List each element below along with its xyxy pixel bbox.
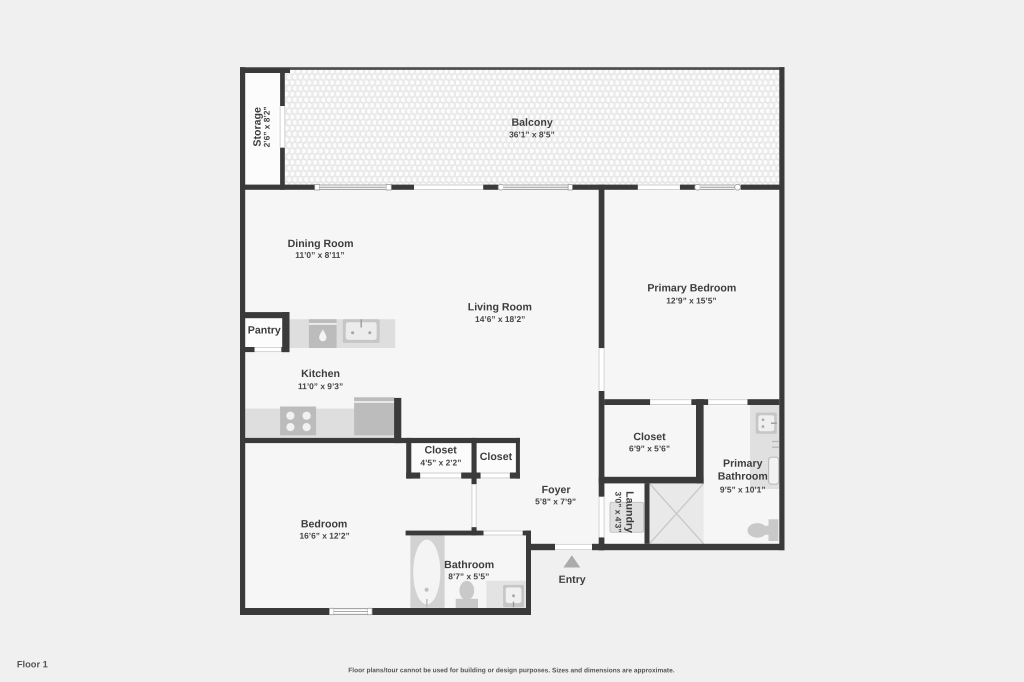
svg-text:5’8” x 7’9”: 5’8” x 7’9” <box>535 496 576 506</box>
svg-text:8’7” x 5’5”: 8’7” x 5’5” <box>448 571 489 581</box>
svg-text:36’1” x 8’5”: 36’1” x 8’5” <box>509 129 555 139</box>
svg-text:Closet: Closet <box>633 431 666 443</box>
svg-text:Entry: Entry <box>559 574 586 586</box>
svg-text:Laundry: Laundry <box>623 491 635 533</box>
svg-text:4’5” x 2’2”: 4’5” x 2’2” <box>420 457 461 467</box>
svg-text:Balcony: Balcony <box>512 117 553 129</box>
svg-text:Bedroom: Bedroom <box>301 518 348 530</box>
svg-text:Bathroom: Bathroom <box>444 559 494 571</box>
svg-text:Floor 1: Floor 1 <box>17 659 48 669</box>
svg-text:Primary: Primary <box>723 458 763 470</box>
svg-text:Floor plans/tour cannot be use: Floor plans/tour cannot be used for buil… <box>348 667 674 674</box>
svg-text:2’6” x 8’2”: 2’6” x 8’2” <box>262 106 272 147</box>
svg-text:Primary Bedroom: Primary Bedroom <box>647 282 736 294</box>
svg-text:Kitchen: Kitchen <box>301 368 340 380</box>
svg-text:Bathroom: Bathroom <box>718 471 768 483</box>
svg-text:Pantry: Pantry <box>248 324 281 336</box>
svg-text:Dining Room: Dining Room <box>288 238 354 250</box>
svg-text:Closet: Closet <box>424 444 457 456</box>
svg-text:6’9” x 5’6”: 6’9” x 5’6” <box>629 443 670 453</box>
svg-text:16’6” x 12’2”: 16’6” x 12’2” <box>299 531 349 541</box>
svg-text:Living Room: Living Room <box>468 301 532 313</box>
svg-text:12’9” x 15’5”: 12’9” x 15’5” <box>666 295 716 305</box>
svg-text:3’0” x 4’3”: 3’0” x 4’3” <box>613 492 623 533</box>
svg-text:9’5” x 10’1”: 9’5” x 10’1” <box>720 485 766 495</box>
svg-text:14’6” x 18’2”: 14’6” x 18’2” <box>475 314 525 324</box>
svg-text:Closet: Closet <box>480 451 513 463</box>
svg-text:11’0” x 9’3”: 11’0” x 9’3” <box>298 381 343 391</box>
svg-text:11’0” x 8’11”: 11’0” x 8’11” <box>295 250 344 260</box>
svg-text:Foyer: Foyer <box>542 484 571 496</box>
